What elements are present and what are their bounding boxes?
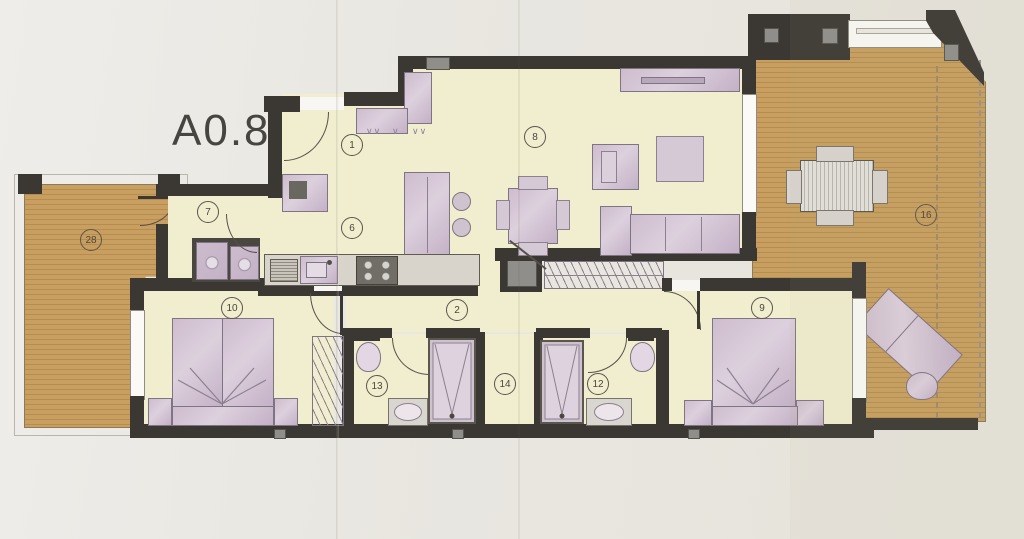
coat-hook-mark: ∨ xyxy=(392,126,400,137)
room-label-utility: 7 xyxy=(197,201,219,223)
nightstand xyxy=(684,400,712,426)
outdoor-chair xyxy=(816,210,854,226)
terrace-sliding-door xyxy=(742,94,757,216)
wall-bottom xyxy=(130,424,874,438)
side-table xyxy=(656,136,704,182)
washing-machine xyxy=(196,242,228,280)
room-label-bathroom-right: 12 xyxy=(587,373,609,395)
shower xyxy=(540,340,584,424)
drainer xyxy=(270,259,298,282)
sink-bowl xyxy=(394,403,422,421)
sink-bowl xyxy=(594,403,624,421)
sofa-seam xyxy=(701,217,702,251)
pillar xyxy=(822,28,838,44)
dining-chair xyxy=(496,200,510,230)
wall-bedroom-right-top xyxy=(700,278,858,291)
kitchen-sink xyxy=(300,256,338,284)
dining-table xyxy=(508,188,558,244)
room-label-entry: 1 xyxy=(341,134,363,156)
island-divider-line xyxy=(427,177,428,253)
wall-segment xyxy=(344,92,404,106)
outdoor-chair xyxy=(786,170,802,204)
wall-segment xyxy=(742,56,756,96)
bar-stool xyxy=(452,218,471,237)
toilet xyxy=(630,342,655,372)
room-label-terrace-left: 28 xyxy=(80,229,102,251)
kitchen-tall-unit xyxy=(282,174,328,212)
room-label-kitchen: 6 xyxy=(341,217,363,239)
sofa-seam xyxy=(665,217,666,251)
pillar xyxy=(764,28,779,43)
toilet-cistern xyxy=(628,334,654,341)
bar-stool xyxy=(452,192,471,211)
bed-sheet-folds xyxy=(172,358,272,406)
hall-wardrobe xyxy=(544,261,664,289)
wall-segment xyxy=(156,184,282,196)
entry-wardrobe xyxy=(404,72,432,124)
sofa xyxy=(630,214,740,254)
window-sill-line xyxy=(856,28,934,34)
wall-segment xyxy=(662,278,672,291)
stove xyxy=(356,256,398,285)
window-bedroom-right xyxy=(852,298,867,402)
sideboard-slot xyxy=(641,77,705,84)
kitchen-island xyxy=(404,172,450,258)
headboard xyxy=(712,406,798,426)
terrace-boundary-dashed xyxy=(979,60,981,418)
lounger-fold-line xyxy=(886,316,919,352)
bed-sheet-folds xyxy=(712,358,794,406)
armchair xyxy=(592,144,639,190)
wardrobe-rail-line xyxy=(545,275,663,276)
sink-vanity xyxy=(388,398,428,426)
toilet-cistern xyxy=(354,334,380,341)
coat-hook-mark: ∨∨ xyxy=(412,126,427,137)
dining-chair xyxy=(556,200,570,230)
door-leaf xyxy=(697,291,700,329)
pillar xyxy=(507,257,537,287)
nightstand xyxy=(796,400,824,426)
dining-chair xyxy=(518,176,548,190)
outdoor-table xyxy=(800,160,874,212)
oven xyxy=(289,181,307,199)
faucet xyxy=(327,260,332,265)
nightstand xyxy=(274,398,298,426)
wall-segment xyxy=(656,330,669,428)
wall-segment xyxy=(18,174,42,194)
wall-segment xyxy=(156,224,168,284)
sink-basin xyxy=(306,262,327,278)
pillar xyxy=(452,429,464,439)
bedroom-left-wardrobe xyxy=(312,336,344,426)
room-label-hallway: 2 xyxy=(446,299,468,321)
wall-segment xyxy=(476,332,485,428)
pillar xyxy=(426,57,450,70)
wall-segment xyxy=(742,212,756,252)
floorplan-scan: A0.8 28 16 xyxy=(0,0,1024,539)
entry-wardrobe xyxy=(356,108,408,134)
plan-title: A0.8 xyxy=(172,106,271,156)
pillar xyxy=(944,44,959,61)
room-label-bedroom-left: 10 xyxy=(221,297,243,319)
wall-segment xyxy=(536,328,590,338)
room-label-terrace-right: 16 xyxy=(915,204,937,226)
pouf xyxy=(906,372,938,400)
room-label-bathroom-left: 13 xyxy=(366,375,388,397)
wall-segment xyxy=(852,262,866,300)
nightstand xyxy=(148,398,172,426)
sideboard xyxy=(620,68,740,92)
wall-segment xyxy=(130,278,144,312)
room-label-bedroom-right: 9 xyxy=(751,297,773,319)
outdoor-chair xyxy=(872,170,888,204)
wall-segment xyxy=(426,328,480,338)
window-bedroom-left xyxy=(130,310,145,400)
pillar xyxy=(688,429,700,439)
armchair-cushion xyxy=(601,151,617,183)
sink-vanity xyxy=(586,398,632,426)
room-label-living: 8 xyxy=(524,126,546,148)
toilet xyxy=(356,342,381,372)
outdoor-chair xyxy=(816,146,854,162)
door-opening xyxy=(672,280,700,291)
headboard xyxy=(172,406,274,426)
entry-door-opening xyxy=(300,97,344,110)
coat-hook-mark: ∨∨ xyxy=(366,126,381,137)
sofa-chaise xyxy=(600,206,632,256)
room-label-inner-hall: 14 xyxy=(494,373,516,395)
window-strip xyxy=(848,20,942,48)
pillar xyxy=(274,429,286,439)
shower xyxy=(428,338,476,424)
